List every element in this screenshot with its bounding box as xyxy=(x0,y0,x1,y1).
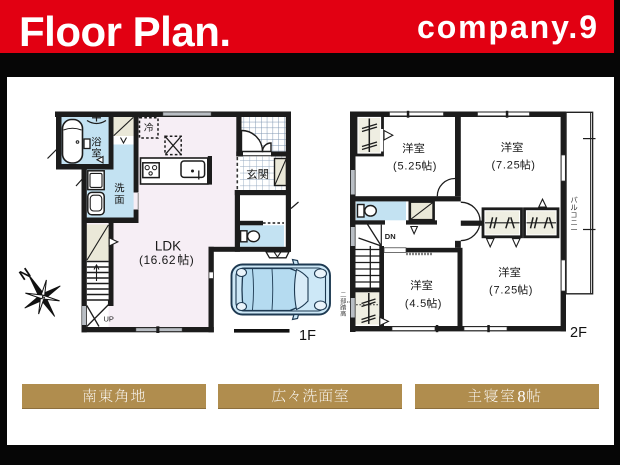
svg-text:8: 8 xyxy=(517,387,525,406)
